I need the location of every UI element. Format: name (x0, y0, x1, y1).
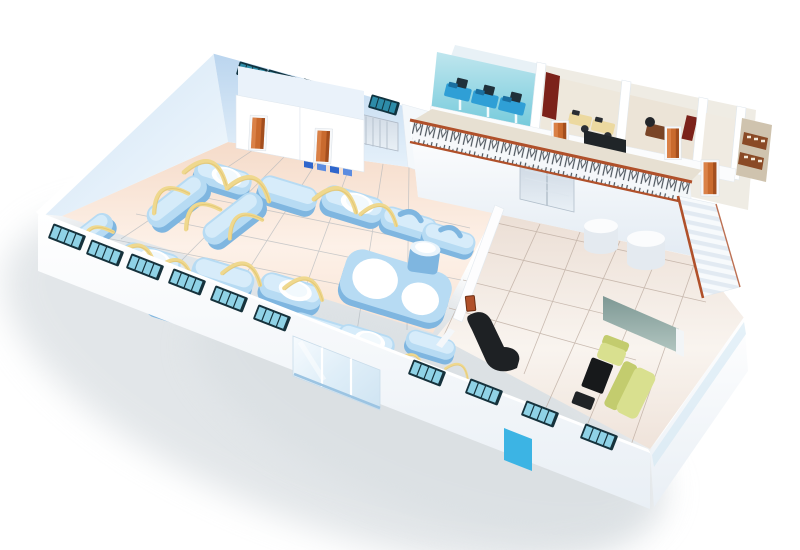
wall-picture (465, 296, 476, 312)
floorplan-illustration (0, 0, 800, 550)
round-stool (627, 231, 665, 270)
archive-room (736, 118, 772, 182)
washroom-door (248, 115, 267, 151)
office-door (701, 160, 719, 196)
round-stool (584, 219, 618, 254)
washroom-door (313, 128, 332, 164)
partition-end-post (676, 328, 684, 357)
facility-render-canvas (0, 0, 800, 550)
office-door (665, 126, 682, 159)
office-chair (645, 117, 655, 127)
cubicle-block (300, 78, 364, 176)
cubicle-block (236, 66, 300, 160)
